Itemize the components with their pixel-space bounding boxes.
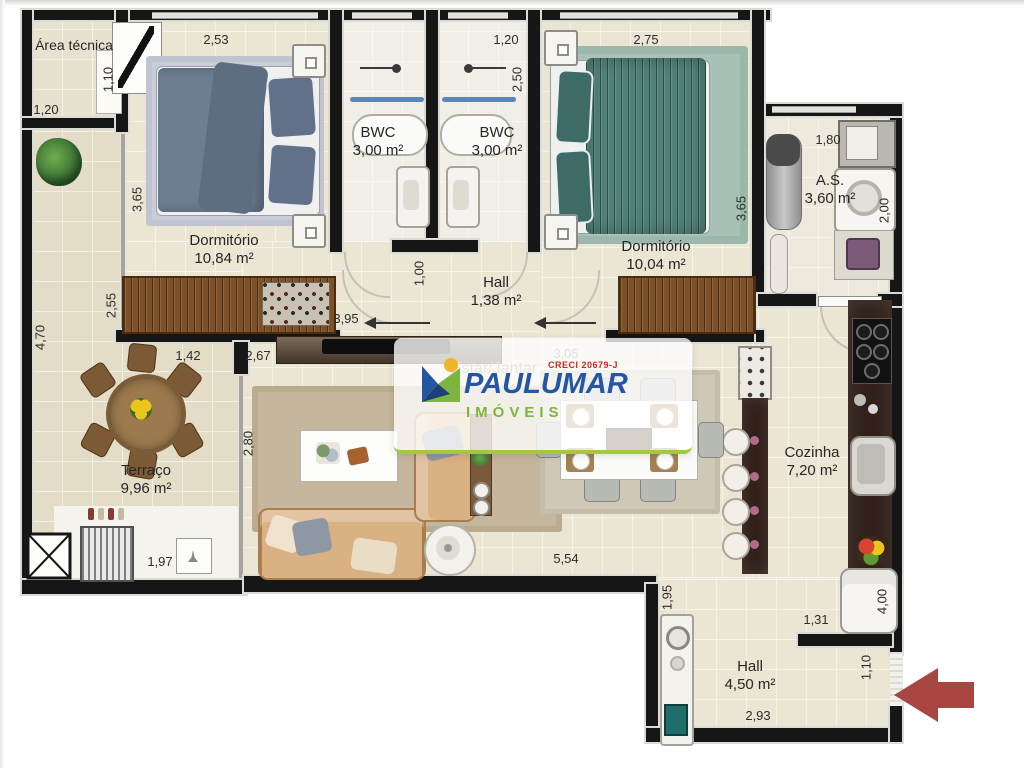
shower-arm [360,67,394,69]
room-area: 9,96 m² [121,480,172,497]
watermark-subtitle: IMÓVEIS [466,404,564,421]
wall-bwc2-right [528,10,540,252]
nightstand [544,30,578,66]
wall-dorm2-right [752,10,764,302]
laundry-basket [846,238,880,270]
bar-plate [750,472,759,481]
floor-plan: 2,53 1,20 2,75 1,20 1,10 3,65 2,50 3,65 … [0,0,1024,768]
towel-bar [350,97,424,102]
bar-stool [722,532,750,560]
door-width-arrow-line [374,322,430,324]
bed1-pillow-top [266,74,318,139]
dim-hall-lower-w: 2,93 [745,708,770,723]
door-width-arrow-line [544,322,596,324]
dim-dorm1-door: 3,95 [333,311,358,326]
burner [864,363,880,379]
wall-bottom-left [22,580,246,594]
console-speaker [473,482,490,499]
label-bwc2: BWC 3,00 m² [472,124,523,160]
dim-dorm1-width: 2,53 [203,32,228,47]
kitchen-utensil [854,394,866,406]
wardrobe-dorm2 [618,276,756,334]
wall-at-left [22,10,32,128]
towel-bar [442,97,516,102]
door-width-arrow-head [364,317,376,329]
burner [856,324,872,340]
wall-at-bottom [22,118,122,128]
shower-arm [472,67,506,69]
bar-shelf [738,346,772,400]
dim-nook-width: 1,97 [147,554,172,569]
sofa-pillow [350,537,398,575]
water-heater-cap [766,134,800,166]
dim-hall-upper: 1,00 [412,254,427,294]
room-name: A.S. [816,172,844,189]
laundry-sink-basin [846,126,878,160]
room-area: 7,20 m² [787,462,838,479]
room-name: Hall [737,658,763,675]
window-bwc2-top [448,12,508,19]
room-name: Cozinha [784,444,839,461]
dim-estar-a: 1,42 [175,348,200,363]
sofa-pillow [291,517,332,557]
dim-estar-b: 2,67 [245,348,270,363]
hall-mirror [666,626,690,650]
dim-estar-bottom: 5,54 [553,551,578,566]
fruit-bowl-icon [856,536,886,566]
room-area: 3,60 m² [805,190,856,207]
dim-as-width: 1,80 [815,132,840,147]
bar-plate [750,540,759,549]
label-cozinha: Cozinha 7,20 m² [784,444,839,480]
bar-stool [722,464,750,492]
burner [873,324,889,340]
grill-utensil [108,508,114,520]
room-name: Terraço [121,462,171,479]
watermark-brand: PAULUMAR [464,368,628,401]
door-width-arrow-head [534,317,546,329]
label-as: A.S. 3,60 m² [805,172,856,208]
window-as-top [772,106,856,113]
room-area: 10,84 m² [194,250,253,267]
room-name: BWC [360,124,395,141]
bed1-pillow-bottom [266,142,318,207]
label-dormitorio1: Dormitório 10,84 m² [189,232,258,268]
room-area: 1,38 m² [471,292,522,309]
dim-hall-lower-h: 1,95 [660,578,675,618]
kitchen-utensil [868,404,878,414]
nightstand [292,214,326,248]
bar-stool [722,498,750,526]
terrace-table-flowers [130,398,152,420]
grill-utensil [118,508,124,520]
room-area: 3,00 m² [472,142,523,159]
watermark-logo-icon [420,356,462,404]
window-dorm1-top [152,12,318,19]
dim-cozinha-wall: 1,31 [803,612,828,627]
dim-estar-glass: 2,80 [241,424,256,464]
hall-picture [664,704,688,736]
bed2-pillow-top [554,69,594,145]
wall-bwc-bottom [392,240,478,252]
bar-plate [750,436,759,445]
dining-chair [698,422,724,458]
sliding-door-terrace [239,374,243,578]
room-area: 4,50 m² [725,676,776,693]
wall-as-bottom-a [758,294,816,306]
grill-utensil [88,508,94,520]
shoe-rack [262,282,330,326]
wall-hall-lower-left [646,584,658,742]
entrance-arrow-icon [936,682,974,708]
elevator-shaft-icon [26,532,72,580]
burner [856,344,872,360]
bar-stool [722,428,750,456]
dim-dorm1-height: 3,65 [130,180,145,220]
label-hall-upper: Hall 1,38 m² [471,274,522,310]
dim-dorm2-height: 3,65 [734,189,749,229]
window-bwc1-top [352,12,412,19]
dim-bwc-width: 1,20 [493,32,518,47]
label-terraco: Terraço 9,96 m² [121,462,172,498]
wall-bwc1-left [330,10,342,252]
dim-terraco-height: 4,70 [33,318,48,358]
dim-terraco-wall: 2,55 [104,286,119,326]
entrance-arrow-head-icon [894,668,938,722]
frame-edge-top [0,0,1024,6]
round-side-table-center [444,544,452,552]
plant-icon [36,138,82,186]
bed2-blanket [586,58,706,234]
dim-dorm2-width: 2,75 [633,32,658,47]
wall-terraco-left [22,124,32,594]
toilet-bwc1-lid [403,180,419,210]
label-hall-lower: Hall 4,50 m² [725,658,776,694]
coffee-table-decor [316,442,340,464]
grill-utensil [98,508,104,520]
room-name: Hall [483,274,509,291]
window-dorm2-top [560,12,738,19]
room-area: 10,04 m² [626,256,685,273]
kitchen-sink-basin [857,444,885,484]
room-name: Dormitório [621,238,690,255]
nightstand [544,214,578,250]
dim-at-width: 1,20 [33,102,58,117]
console-speaker [473,499,490,516]
room-area: 3,00 m² [353,142,404,159]
dim-entry-width: 1,10 [859,648,874,688]
nightstand [292,44,326,78]
frame-edge-left [0,0,5,768]
dim-cozinha-height: 4,00 [875,582,890,622]
wall-cozinha-bottom [798,634,892,646]
burner [873,344,889,360]
terrace-chair [127,343,158,374]
dim-bwc-height: 2,50 [510,60,525,100]
hall-decor-dot [670,656,685,671]
room-name: BWC [479,124,514,141]
dim-at-height: 1,10 [101,60,116,100]
label-dormitorio2: Dormitório 10,04 m² [621,238,690,274]
toilet-bwc2-lid [453,180,469,210]
ironing-board [770,234,788,294]
room-name: Dormitório [189,232,258,249]
label-area-tecnica: Área técnica [35,36,113,54]
dim-as-height: 2,00 [877,191,892,231]
label-bwc1: BWC 3,00 m² [353,124,404,160]
grill-icon [80,526,134,582]
bar-plate [750,506,759,515]
